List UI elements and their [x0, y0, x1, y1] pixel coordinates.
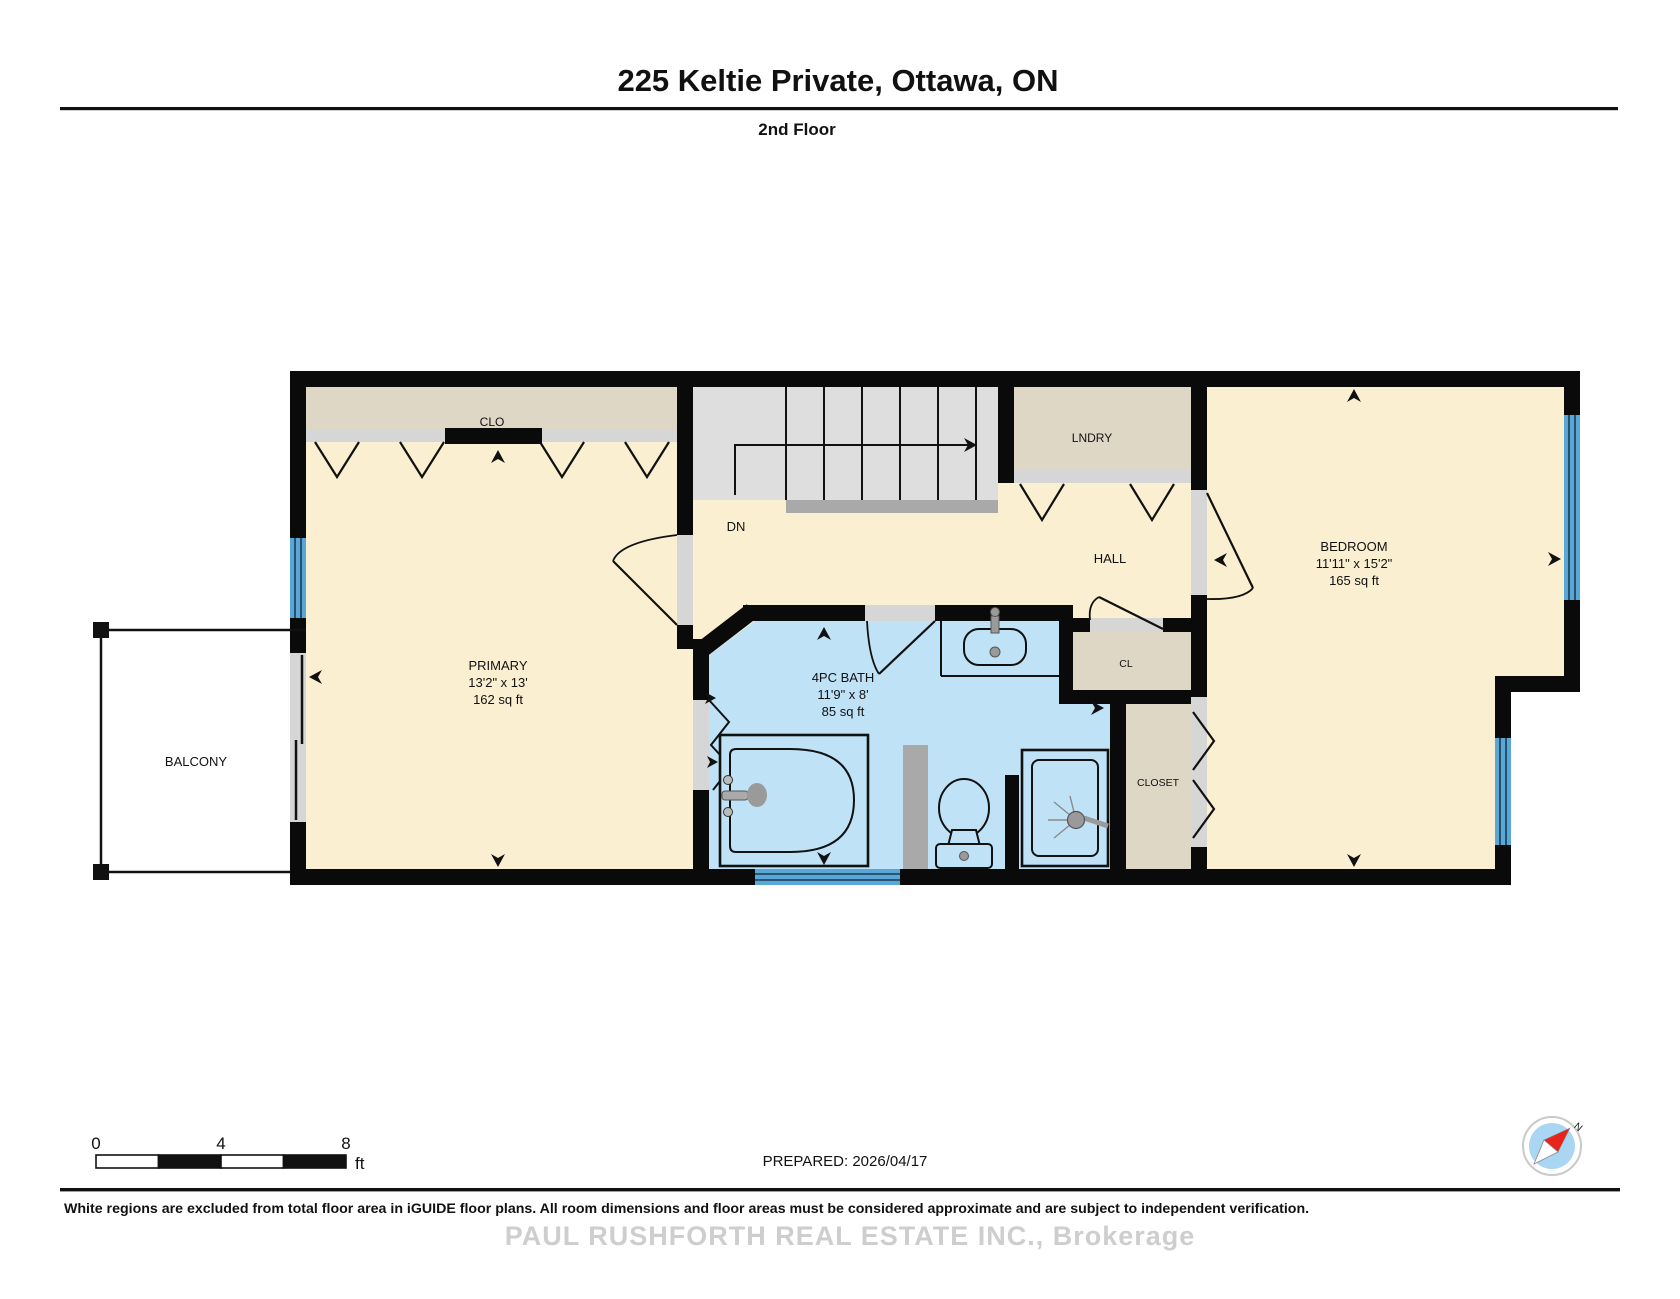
wall-stairs-laundry — [998, 387, 1014, 483]
door-opening-cl — [1090, 618, 1163, 632]
label-primary-name: PRIMARY — [469, 658, 528, 673]
label-hall: HALL — [1094, 551, 1127, 566]
floor-plan-canvas: 225 Keltie Private, Ottawa, ON 2nd Floor — [0, 0, 1680, 1299]
floor-label: 2nd Floor — [758, 120, 836, 139]
window-bath-bottom — [755, 869, 900, 885]
laundry-door-track — [1014, 470, 1191, 483]
scale-segment — [284, 1155, 347, 1168]
bath-partition — [903, 745, 928, 869]
door-opening-bedroom — [1191, 490, 1207, 595]
balcony-outline — [101, 630, 306, 872]
wall-closet-left — [1110, 690, 1126, 869]
page-title: 225 Keltie Private, Ottawa, ON — [617, 63, 1058, 98]
label-bath-name: 4PC BATH — [812, 670, 875, 685]
bathtub-icon — [720, 735, 868, 866]
footer-divider — [60, 1188, 1620, 1191]
label-laundry: LNDRY — [1072, 431, 1112, 445]
scale-segment — [96, 1155, 159, 1168]
window-primary-left — [290, 538, 306, 618]
stairs-landing-strip — [786, 500, 998, 513]
header-divider — [60, 107, 1618, 110]
wall-cl-top-right — [1163, 618, 1191, 632]
wall-shower-stub — [1005, 775, 1019, 869]
wall-clo-segment — [445, 428, 542, 444]
balcony-sliding-door — [290, 653, 306, 822]
scale-unit: ft — [355, 1154, 365, 1173]
wall-notch — [1495, 676, 1580, 692]
window-bedroom-upper — [1564, 415, 1580, 600]
scale-segment — [159, 1155, 222, 1168]
label-primary-area: 162 sq ft — [473, 692, 523, 707]
label-primary-dims: 13'2" x 13' — [468, 675, 527, 690]
wall-bottom — [290, 869, 1511, 885]
door-opening-primary-bath — [693, 700, 709, 790]
toilet-icon — [936, 779, 992, 868]
compass-icon: N — [1523, 1117, 1584, 1175]
label-bath-area: 85 sq ft — [822, 704, 865, 719]
wall-cl-top-left — [1059, 618, 1090, 632]
prepared-date: PREPARED: 2026/04/17 — [763, 1153, 928, 1170]
scale-tick-8: 8 — [341, 1134, 350, 1153]
balcony — [93, 622, 306, 880]
label-dn: DN — [727, 519, 746, 534]
stairs-floor — [693, 387, 998, 500]
scale-tick-0: 0 — [91, 1134, 100, 1153]
scale-bar: 0 4 8 ft — [91, 1134, 364, 1173]
balcony-post — [93, 864, 109, 880]
scale-tick-4: 4 — [216, 1134, 225, 1153]
wall-top — [290, 371, 1580, 387]
scale-segment — [221, 1155, 284, 1168]
label-clo: CLO — [480, 415, 505, 429]
footer-disclaimer: White regions are excluded from total fl… — [64, 1201, 1309, 1217]
label-bath-dims: 11'9" x 8' — [817, 687, 868, 702]
label-bedroom-name: BEDROOM — [1320, 539, 1387, 554]
door-opening-primary — [677, 535, 693, 625]
shower-icon — [1022, 750, 1108, 866]
window-bedroom-lower — [1495, 738, 1511, 845]
door-opening-bath — [865, 605, 935, 621]
label-closet: CLOSET — [1137, 777, 1180, 789]
label-bedroom-dims: 11'11" x 15'2" — [1316, 556, 1393, 571]
label-bedroom-area: 165 sq ft — [1329, 573, 1379, 588]
label-cl: CL — [1119, 658, 1133, 670]
brokerage-watermark: PAUL RUSHFORTH REAL ESTATE INC., Brokera… — [505, 1221, 1196, 1251]
room-laundry-floor — [1014, 387, 1191, 470]
floor-plan-page: 225 Keltie Private, Ottawa, ON 2nd Floor — [0, 0, 1680, 1299]
balcony-post — [93, 622, 109, 638]
label-balcony: BALCONY — [165, 754, 227, 769]
